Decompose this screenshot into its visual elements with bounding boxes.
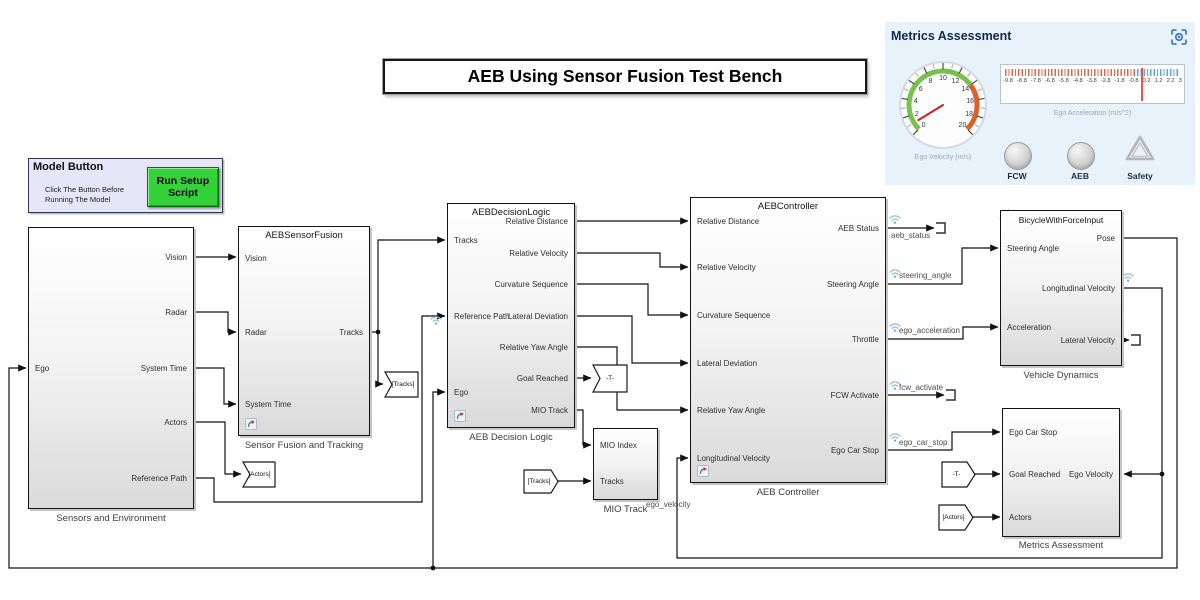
- goto-tag-actors[interactable]: [Actors]: [244, 471, 275, 478]
- port-label-longitudinal-velocity: Longitudinal Velocity: [1042, 284, 1115, 294]
- model-button-title: Model Button: [33, 161, 103, 173]
- port-label-radar: Radar: [245, 328, 267, 338]
- gauge-tick-label: 8: [929, 78, 933, 85]
- fcw-lamp-label: FCW: [995, 171, 1039, 181]
- port-label-longitudinal-velocity: Longitudinal Velocity: [697, 454, 770, 464]
- port-label-vision: Vision: [165, 253, 187, 263]
- port-label-relative-yaw-angle: Relative Yaw Angle: [500, 343, 568, 353]
- safety-label: Safety: [1118, 171, 1162, 181]
- terminator-aeb-status: [936, 223, 945, 233]
- block-aeb-sensor-fusion[interactable]: AEBSensorFusion Vision Radar System Time…: [238, 226, 370, 436]
- signal-label-ego-car-stop: ego_car_stop: [899, 438, 947, 447]
- accel-tick-band-negative: [1005, 69, 1137, 76]
- port-label-reference-path: Reference Path: [454, 312, 510, 322]
- port-label-throttle: Throttle: [852, 335, 879, 345]
- dashboard-title: Metrics Assessment: [891, 29, 1011, 43]
- gauge-tick-label: 6: [919, 86, 923, 93]
- gauge-tick-label: 20: [959, 122, 967, 129]
- port-label-curvature-sequence: Curvature Sequence: [697, 311, 770, 321]
- gauge-tick-label: 12: [952, 78, 960, 85]
- port-label-lateral-deviation: Lateral Deviation: [697, 359, 757, 369]
- model-title-text: AEB Using Sensor Fusion Test Bench: [468, 66, 783, 87]
- model-button-area: Model Button Click The Button Before Run…: [28, 158, 223, 213]
- port-label-actors: Actors: [1009, 513, 1032, 523]
- port-label-ego: Ego: [35, 364, 49, 374]
- caption-sensors-and-environment: Sensors and Environment: [28, 513, 194, 524]
- signal-label-ego-acceleration: ego_acceleration: [899, 326, 960, 335]
- goto-tag-tracks[interactable]: [Tracks]: [388, 381, 418, 388]
- signal-label-aeb-status: aeb_status: [891, 231, 930, 240]
- block-aeb-decision-logic[interactable]: AEBDecisionLogic Tracks Reference Path E…: [447, 203, 575, 428]
- port-label-lateral-velocity: Lateral Velocity: [1061, 336, 1115, 346]
- port-label-lateral-deviation: Lateral Deviation: [508, 312, 568, 322]
- safety-warning-icon[interactable]: [1125, 134, 1155, 162]
- gauge-tick-label: 14: [961, 86, 969, 93]
- block-header: AEBController: [691, 201, 885, 212]
- model-button-description: Click The Button Before Running The Mode…: [45, 185, 124, 205]
- gauge-label: Ego Velocity (m/s): [895, 154, 991, 161]
- model-reference-badge-icon: [697, 465, 709, 477]
- port-label-system-time: System Time: [245, 400, 291, 410]
- port-label-relative-distance: Relative Distance: [697, 217, 759, 227]
- port-label-relative-yaw-angle: Relative Yaw Angle: [697, 406, 765, 416]
- port-label-actors: Actors: [164, 418, 187, 428]
- port-label-relative-distance: Relative Distance: [506, 217, 568, 227]
- port-label-goal-reached: Goal Reached: [517, 374, 568, 384]
- accel-gauge-label: Ego Acceleration (m/s^2): [1000, 110, 1185, 117]
- port-label-mio-track: MIO Track: [531, 406, 568, 416]
- port-label-curvature-sequence: Curvature Sequence: [495, 280, 568, 290]
- port-label-aeb-status: AEB Status: [838, 224, 879, 234]
- caption-aeb-controller: AEB Controller: [690, 487, 886, 498]
- port-label-goal-reached: Goal Reached: [1009, 470, 1060, 480]
- caption-metrics-assessment: Metrics Assessment: [1002, 540, 1120, 551]
- goto-tag-t[interactable]: -T-: [595, 375, 625, 382]
- from-tag-tracks[interactable]: [Tracks]: [524, 478, 554, 485]
- gauge-tick-label: 16: [966, 98, 974, 105]
- accel-tick-labels: -9.8 -8.8 -7.8 -6.8 -5.8 -4.8 -3.8 -2.8 …: [1003, 78, 1182, 84]
- port-label-relative-velocity: Relative Velocity: [509, 249, 568, 259]
- port-label-radar: Radar: [165, 308, 187, 318]
- port-label-ego-velocity: Ego Velocity: [1069, 470, 1113, 480]
- port-label-steering-angle: Steering Angle: [1007, 244, 1059, 254]
- terminator-fcw-activate: [946, 390, 955, 400]
- caption-aeb-decision-logic: AEB Decision Logic: [431, 432, 591, 443]
- port-label-ego: Ego: [454, 388, 468, 398]
- port-label-vision: Vision: [245, 254, 267, 264]
- viewfinder-gear-icon[interactable]: [1170, 28, 1188, 46]
- simulink-canvas: AEB Using Sensor Fusion Test Bench Model…: [0, 0, 1200, 600]
- signal-label-fcw-activate: fcw_activate: [899, 383, 943, 392]
- port-label-ego-car-stop: Ego Car Stop: [1009, 428, 1057, 438]
- from-tag-actors[interactable]: [Actors]: [939, 514, 968, 521]
- aeb-lamp-label: AEB: [1058, 171, 1102, 181]
- gauge-tick-label: 4: [914, 98, 918, 105]
- gauge-tick-label: 10: [939, 75, 947, 82]
- block-header: AEBSensorFusion: [239, 230, 369, 241]
- run-setup-script-button[interactable]: Run Setup Script: [147, 167, 219, 207]
- ego-velocity-gauge[interactable]: 02468101214161820: [899, 61, 987, 149]
- from-tag-t[interactable]: -T-: [943, 471, 970, 478]
- signal-label-ego-velocity: ego_velocity: [646, 500, 690, 509]
- port-label-steering-angle: Steering Angle: [827, 280, 879, 290]
- port-label-acceleration: Acceleration: [1007, 323, 1051, 333]
- port-label-ego-car-stop: Ego Car Stop: [831, 446, 879, 456]
- aeb-lamp[interactable]: [1067, 142, 1095, 170]
- block-mio-track[interactable]: MIO Index Tracks: [593, 428, 658, 500]
- caption-sensor-fusion-and-tracking: Sensor Fusion and Tracking: [218, 440, 390, 451]
- port-label-relative-velocity: Relative Velocity: [697, 263, 756, 273]
- accel-gauge-needle: [1141, 68, 1143, 101]
- terminator-lateral-velocity: [1131, 335, 1140, 345]
- block-header: BicycleWithForceInput: [1001, 215, 1121, 225]
- port-label-tracks: Tracks: [600, 477, 624, 487]
- block-aeb-controller[interactable]: AEBController Relative Distance Relative…: [690, 197, 886, 483]
- port-label-pose: Pose: [1097, 234, 1115, 244]
- port-label-tracks: Tracks: [339, 328, 363, 338]
- port-label-mio-index: MIO Index: [600, 441, 637, 451]
- block-metrics-assessment[interactable]: Ego Car Stop Goal Reached Actors Ego Vel…: [1002, 408, 1120, 537]
- model-title: AEB Using Sensor Fusion Test Bench: [383, 59, 867, 94]
- gauge-tick-label: 0: [922, 122, 926, 129]
- accel-tick-band-positive: [1137, 69, 1179, 76]
- fcw-lamp[interactable]: [1004, 142, 1032, 170]
- model-reference-badge-icon: [245, 418, 257, 430]
- gauge-tick-label: 2: [915, 111, 919, 118]
- signal-label-steering-angle: steering_angle: [899, 271, 951, 280]
- port-label-system-time: System Time: [141, 364, 187, 374]
- port-label-fcw-activate: FCW Activate: [831, 391, 879, 401]
- metrics-dashboard-panel: Metrics Assessment 02468101214161820 Ego…: [885, 22, 1195, 185]
- model-reference-badge-icon: [454, 410, 466, 422]
- block-vehicle-dynamics[interactable]: BicycleWithForceInput Steering Angle Acc…: [1000, 210, 1122, 366]
- caption-vehicle-dynamics: Vehicle Dynamics: [1000, 370, 1122, 381]
- ego-acceleration-gauge[interactable]: -9.8 -8.8 -7.8 -6.8 -5.8 -4.8 -3.8 -2.8 …: [1000, 64, 1185, 104]
- port-label-reference-path: Reference Path: [131, 474, 187, 484]
- block-sensors-and-environment[interactable]: Ego Vision Radar System Time Actors Refe…: [28, 227, 194, 509]
- port-label-tracks: Tracks: [454, 236, 478, 246]
- gauge-tick-label: 18: [965, 111, 973, 118]
